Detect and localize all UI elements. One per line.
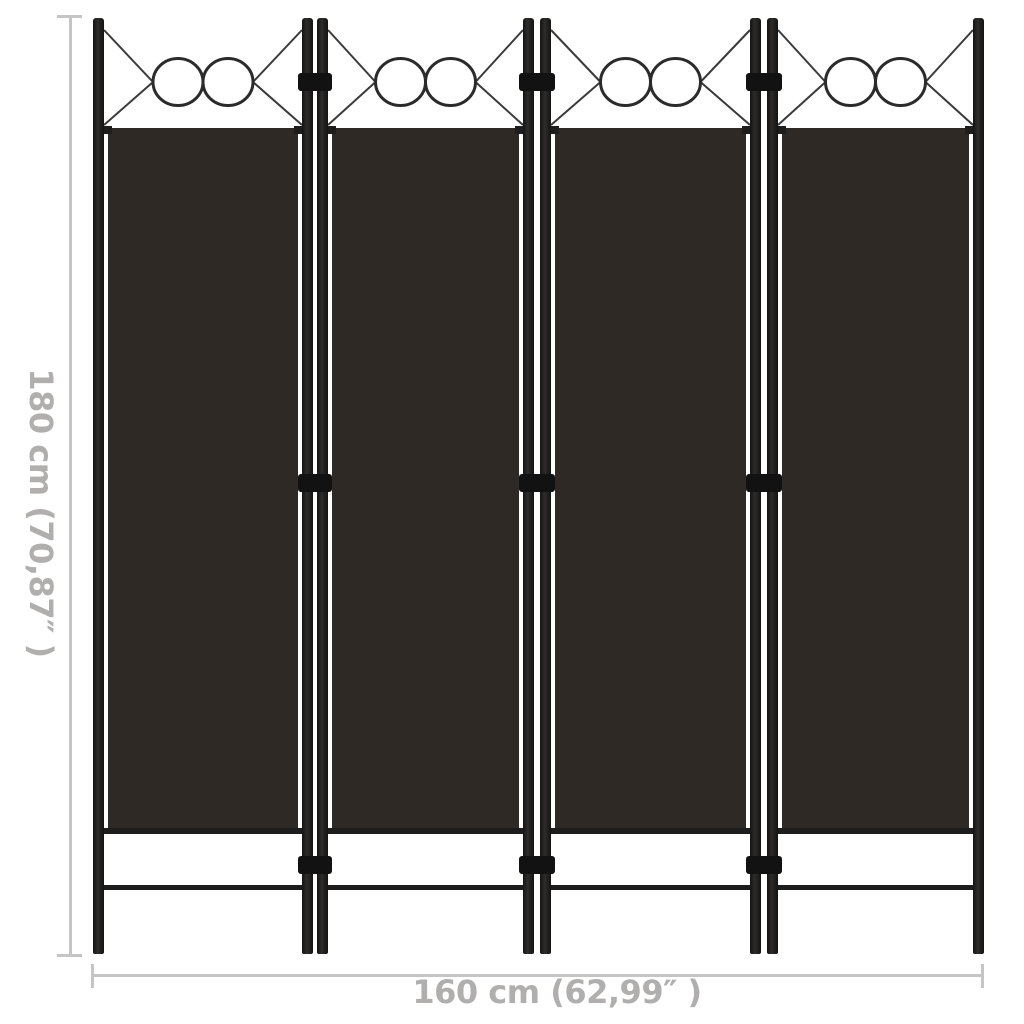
decor-circle <box>376 59 426 106</box>
panel-3-foot-crossbar <box>540 885 761 890</box>
decor-line <box>926 82 974 125</box>
decor-line <box>701 30 751 82</box>
decor-circle <box>826 59 876 106</box>
decor-line <box>926 30 974 82</box>
height-dimension-label: 180 cm (70,87″ ) <box>21 353 61 673</box>
decor-line <box>328 30 376 82</box>
panel-post <box>93 18 104 954</box>
decor-line <box>253 30 302 82</box>
decor-line <box>253 82 302 125</box>
dimension-end-cap <box>981 964 984 988</box>
panel-1-fabric <box>108 128 298 828</box>
panel-post <box>973 18 984 954</box>
panel-1-decoration <box>104 30 302 125</box>
dimension-end-cap <box>91 964 94 988</box>
hinge-bottom-3 <box>746 856 782 874</box>
decor-line <box>778 30 826 82</box>
panel-1-foot-crossbar <box>93 885 313 890</box>
panel-2-decoration <box>328 30 523 125</box>
decor-circle <box>651 59 701 106</box>
decor-line <box>551 82 601 125</box>
room-divider-dimension-diagram: 180 cm (70,87″ ) 160 cm (62,99″ ) <box>0 0 1024 1024</box>
hinge-bottom-1 <box>298 856 332 874</box>
hinge-middle-1 <box>298 474 332 492</box>
decor-circle <box>601 59 651 106</box>
panel-4-bottom-rail <box>767 828 984 834</box>
panel-2-foot-crossbar <box>317 885 534 890</box>
panel-2-fabric <box>332 128 519 828</box>
decor-line <box>328 82 376 125</box>
dimension-end-cap <box>57 954 82 957</box>
decor-circle <box>426 59 476 106</box>
decor-line <box>476 82 524 125</box>
hinge-middle-2 <box>519 474 555 492</box>
panel-2-bottom-rail <box>317 828 534 834</box>
decor-circle <box>876 59 926 106</box>
hinge-bottom-2 <box>519 856 555 874</box>
decor-line <box>778 82 826 125</box>
decor-line <box>551 30 601 82</box>
panel-3-decoration <box>551 30 750 125</box>
hinge-top-2 <box>519 73 555 91</box>
width-dimension-label: 160 cm (62,99″ ) <box>357 972 757 1012</box>
decor-line <box>104 30 153 82</box>
panel-3-fabric <box>555 128 746 828</box>
panel-1-bottom-rail <box>93 828 313 834</box>
decor-circle <box>153 59 203 106</box>
decor-line <box>104 82 153 125</box>
panel-4-decoration <box>778 30 973 125</box>
hinge-middle-3 <box>746 474 782 492</box>
panel-4-fabric <box>782 128 969 828</box>
decor-line <box>476 30 524 82</box>
hinge-top-3 <box>746 73 782 91</box>
height-dimension-line <box>69 16 72 957</box>
dimension-end-cap <box>57 15 82 18</box>
hinge-top-1 <box>298 73 332 91</box>
panel-4-foot-crossbar <box>767 885 984 890</box>
decor-circle <box>203 59 253 106</box>
panel-3-bottom-rail <box>540 828 761 834</box>
decor-line <box>701 82 751 125</box>
